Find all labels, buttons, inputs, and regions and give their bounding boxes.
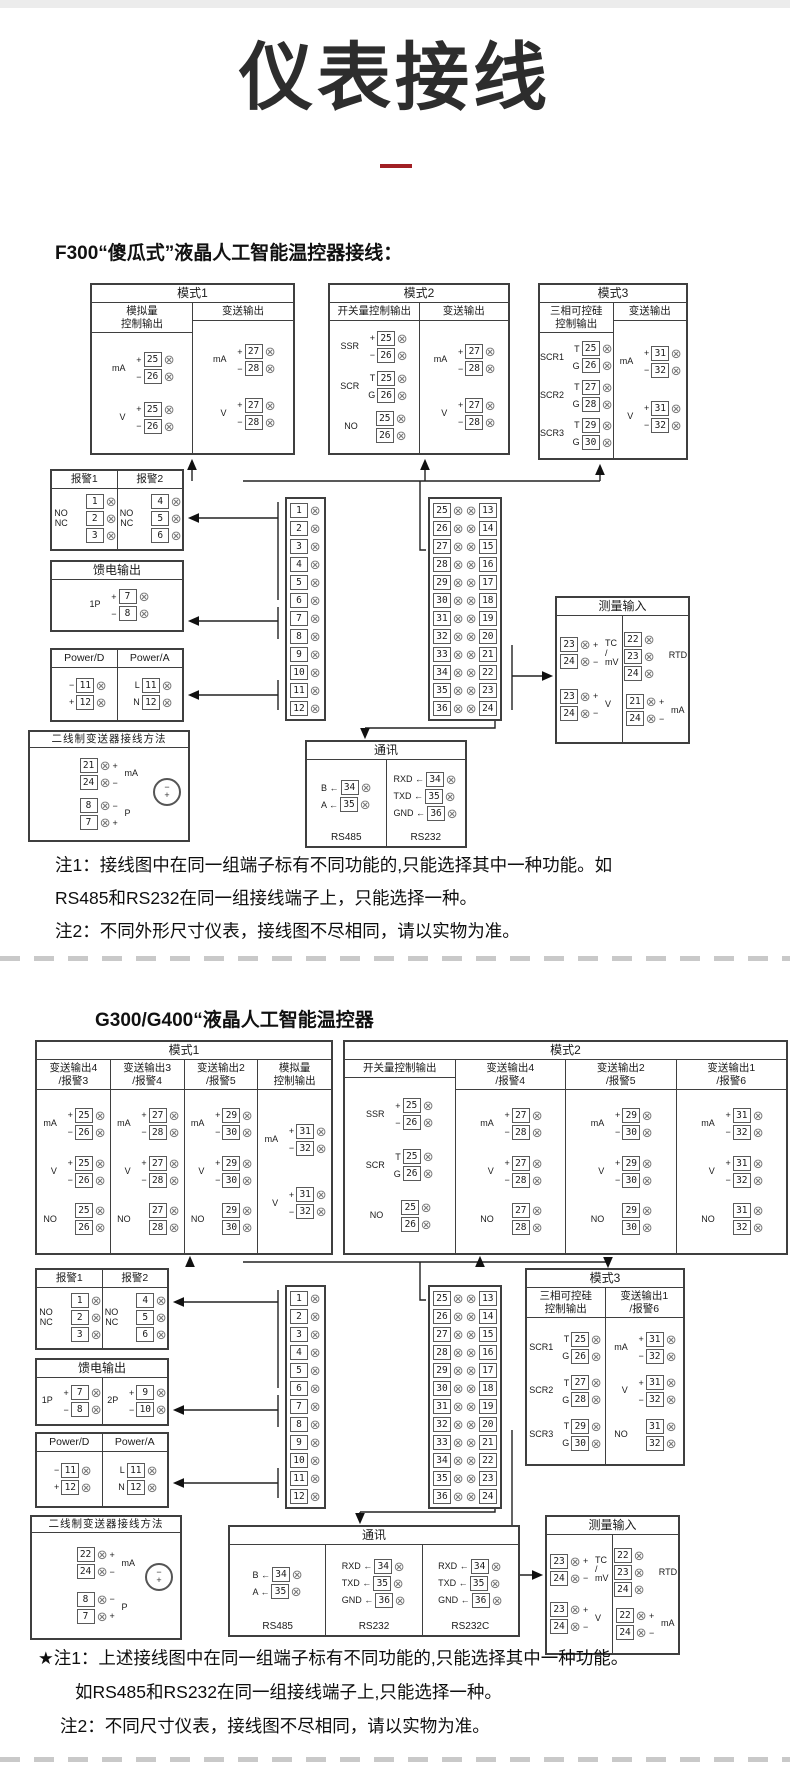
terminal-number: 26 [75,1173,93,1188]
strip-row: 7⊕ [290,1397,321,1415]
group-label: NO [478,1215,494,1224]
group-label: SCR1 [540,353,564,362]
terminal-number: 2 [290,521,308,536]
terminal-number: 12 [61,1480,79,1495]
terminal-number: 11 [76,678,94,693]
terminal: 24⊕− [560,706,602,721]
screw-terminal-icon: ⊕ [639,1219,656,1236]
terminal-mark: − [659,714,668,724]
terminal-number: 9 [290,647,308,662]
terminal-number: 25 [144,402,162,417]
f300-comm-panel: 通讯B ←34⊕A ←35⊕RS485RXD ←34⊕TXD ←35⊕GND ←… [305,740,467,848]
terminal: G26⊕ [567,358,613,373]
screw-terminal-icon: ⊕ [239,1219,256,1236]
group-label: NO NC [37,1308,53,1327]
terminal-group: NO25⊕26⊕ [330,411,419,443]
column-body: −11⊕+12⊕ [52,668,117,720]
terminal-mark: − [281,1143,294,1153]
column-header: 变送输出 [614,303,687,321]
terminal: +29⊕ [607,1156,653,1171]
g300-note-1: ★注1：上述接线图中在同一组端子标有不同功能的,只能选择其中一种功能。 [38,1645,628,1670]
screw-terminal-icon: ⊕ [92,1155,109,1172]
terminal: 28⊕ [497,1220,543,1235]
screw-terminal-icon: ⊕ [166,1219,183,1236]
screw-terminal-icon: ⊕ [97,757,114,774]
panel-column: 23⊕+24⊕−TC / mV23⊕+24⊕−V [547,1535,612,1653]
group-label: mA [478,1119,494,1128]
panel-columns: 模拟量 控制输出mA+25⊕−26⊕V+25⊕−26⊕变送输出mA+27⊕−28… [92,303,293,453]
terminal-number: 32 [646,1392,664,1407]
terminal: +27⊕ [497,1156,543,1171]
terminal-mark: L [112,1465,125,1475]
screw-terminal-icon: ⊕ [750,1124,767,1141]
terminal-number: 29 [622,1156,640,1171]
terminal: 26⊕ [60,1220,106,1235]
terminal-mark: − [134,1175,147,1185]
terminal-mark: + [583,1605,592,1615]
terminal-list: +31⊕−32⊕ [631,1375,677,1407]
terminal: +25⊕ [129,352,175,367]
g300-twowire-panel: 二线制变送器接线方法22⊕+24⊕−mA8⊕−7⊕+P−+ [30,1515,182,1640]
group-label: V [595,1614,609,1623]
screw-terminal-icon: ⊕ [420,1097,437,1114]
terminal: 27⊕ [134,1203,180,1218]
terminal-list: 27⊕28⊕ [497,1203,543,1235]
screw-terminal-icon: ⊕ [394,347,411,364]
terminal: 24⊕− [550,1571,592,1586]
terminal-list: +9⊕−10⊕ [121,1385,167,1417]
screw-terminal-icon: ⊕ [313,1140,330,1157]
terminal-number: 12 [76,695,94,710]
column-body: mA+29⊕−30⊕V+29⊕−30⊕NO29⊕30⊕ [185,1090,258,1253]
screw-terminal-icon: ⊕ [166,1172,183,1189]
terminal-number: 2 [86,511,104,526]
terminal: 21⊕+ [626,694,668,709]
screw-terminal-icon: ⊕ [639,1172,656,1189]
terminal: N12⊕ [127,695,173,710]
group-label: mA [671,706,685,715]
terminal: +27⊕ [497,1108,543,1123]
terminal-number: 33 [433,647,451,662]
screw-terminal-icon: ⊕ [463,1380,480,1397]
screw-terminal-icon: ⊕ [166,1124,183,1141]
screw-terminal-icon: ⊕ [262,397,279,414]
terminal-number: 8 [77,1592,95,1607]
terminal-number: 24 [560,706,578,721]
terminal-list: +27⊕−28⊕ [497,1108,543,1140]
terminal-list: −11⊕+12⊕ [61,678,107,710]
screw-terminal-icon: ⊕ [159,694,176,711]
terminal-mark: + [649,1611,658,1621]
screw-terminal-icon: ⊕ [153,1326,170,1343]
g300-strip-right: 25⊕⊕1326⊕⊕1427⊕⊕1528⊕⊕1629⊕⊕1730⊕⊕1831⊕⊕… [428,1285,502,1509]
terminal-mark: − [362,350,375,360]
terminal-mark: − [134,1127,147,1137]
f300-mode1-panel: 模式1模拟量 控制输出mA+25⊕−26⊕V+25⊕−26⊕变送输出mA+27⊕… [90,283,295,455]
terminal-number: 33 [433,1435,451,1450]
screw-terminal-icon: ⊕ [420,1148,437,1165]
terminal-number: 19 [479,1399,497,1414]
terminal-number: 22 [479,665,497,680]
screw-terminal-icon: ⊕ [307,556,324,573]
group-label: SCR2 [540,391,564,400]
screw-terminal-icon: ⊕ [153,1401,170,1418]
screw-terminal-icon: ⊕ [357,796,374,813]
terminal: B ←34⊕ [321,780,371,795]
terminal: −28⊕ [134,1125,180,1140]
terminal-number: 36 [433,701,451,716]
screw-terminal-icon: ⊕ [394,330,411,347]
terminal: G26⊕ [388,1166,434,1181]
terminal-number: 16 [479,1345,497,1360]
screw-terminal-icon: ⊕ [463,1434,480,1451]
screw-terminal-icon: ⊕ [390,1575,407,1592]
terminal: 24⊕− [550,1619,592,1634]
terminal-mark: + [450,400,463,410]
terminal-list: +27⊕−28⊕ [497,1156,543,1188]
group-label: mA [124,769,138,778]
strip-row: 27⊕⊕15 [433,1325,497,1343]
terminal: 23⊕ [624,649,666,664]
terminal: −28⊕ [497,1125,543,1140]
terminal: 3⊕ [71,528,117,543]
terminal-mark: A ← [252,1587,269,1597]
strip-row: 27⊕⊕15 [433,537,497,555]
terminal: −11⊕ [46,1463,92,1478]
strip-row: 8⊕ [290,627,321,645]
group-label: mA [41,1119,57,1128]
terminal-list: +29⊕−30⊕ [607,1108,653,1140]
terminal-number: 7 [290,611,308,626]
panel-title: 馈电输出 [37,1360,167,1378]
strip-row: 10⊕ [290,663,321,681]
panel-columns: B ←34⊕A ←35⊕RS485RXD ←34⊕TXD ←35⊕GND ←36… [307,760,465,846]
screw-terminal-icon: ⊕ [307,1416,324,1433]
terminal-number: 4 [290,557,308,572]
terminal-number: 27 [433,539,451,554]
terminal: 22⊕ [614,1548,656,1563]
terminal: +25⊕ [60,1156,106,1171]
f300-strip-left: 1⊕2⊕3⊕4⊕5⊕6⊕7⊕8⊕9⊕10⊕11⊕12⊕ [285,497,326,721]
panel-columns: 开关量控制输出SSR+25⊕−26⊕SCRT25⊕G26⊕NO25⊕26⊕变送输… [330,303,508,453]
screw-terminal-icon: ⊕ [166,1155,183,1172]
screw-terminal-icon: ⊕ [97,774,114,791]
terminal-number: 11 [142,678,160,693]
terminal-number: 26 [75,1220,93,1235]
terminal-number: 22 [624,632,642,647]
terminal-mark: − [230,417,243,427]
strip-row: 33⊕⊕21 [433,645,497,663]
group-label: V [41,1167,57,1176]
terminal: L11⊕ [112,1463,158,1478]
screw-terminal-icon: ⊕ [239,1202,256,1219]
terminal-mark: − [450,364,463,374]
group-label: SCR [340,382,359,391]
terminal-mark: + [112,761,121,771]
screw-terminal-icon: ⊕ [633,1624,650,1641]
terminal-list: +27⊕−28⊕ [230,344,276,376]
terminal-number: 26 [403,1166,421,1181]
column-body: mA+25⊕−26⊕V+25⊕−26⊕NO25⊕26⊕ [37,1090,110,1253]
terminal-number: 28 [149,1220,167,1235]
strip-row: 3⊕ [290,537,321,555]
terminal-number: 7 [290,1399,308,1414]
terminal: 24⊕− [560,654,602,669]
screw-terminal-icon: ⊕ [307,646,324,663]
strip-row: 4⊕ [290,1343,321,1361]
terminal-list: RXD ←34⊕TXD ←35⊕GND ←36⊕ [394,772,458,821]
terminal-list: 31⊕32⊕ [718,1203,764,1235]
terminal-group: NO25⊕26⊕ [37,1203,110,1235]
screw-terminal-icon: ⊕ [94,1546,111,1563]
terminal: 6⊕ [121,1327,167,1342]
g300-comm-panel: 通讯B ←34⊕A ←35⊕RS485RXD ←34⊕TXD ←35⊕GND ←… [228,1525,520,1637]
terminal-mark: − [112,778,121,788]
terminal-number: 29 [222,1156,240,1171]
group-label: V [211,409,227,418]
terminal-number: 29 [571,1419,589,1434]
terminal-list: +29⊕−30⊕ [207,1156,253,1188]
panel-column: 开关量控制输出SSR+25⊕−26⊕SCRT25⊕G26⊕NO25⊕26⊕ [345,1060,455,1253]
screw-terminal-icon: ⊕ [463,574,480,591]
screw-terminal-icon: ⊕ [588,1331,605,1348]
screw-terminal-icon: ⊕ [443,771,460,788]
terminal-number: 31 [651,401,669,416]
terminal-mark: + [129,404,142,414]
screw-terminal-icon: ⊕ [288,1583,305,1600]
terminal-group: NO31⊕32⊕ [677,1203,787,1235]
terminal-number: 8 [290,629,308,644]
screw-terminal-icon: ⊕ [92,1172,109,1189]
terminal-number: 27 [149,1156,167,1171]
panel-column: RXD ←34⊕TXD ←35⊕GND ←36⊕RS232C [422,1545,518,1635]
strip-row: 34⊕⊕22 [433,1451,497,1469]
terminal-mark: G [556,1395,569,1405]
terminal-number: 24 [616,1625,634,1640]
terminal-mark: + [497,1158,510,1168]
terminal-list: +25⊕−26⊕ [388,1098,434,1130]
screw-terminal-icon: ⊕ [567,1570,584,1587]
screw-terminal-icon: ⊕ [78,1479,95,1496]
terminal-number: 23 [560,637,578,652]
terminal-group: SCR1T25⊕G26⊕ [540,341,613,373]
terminal-number: 7 [77,1609,95,1624]
terminal: GND ←36⊕ [342,1593,406,1608]
panel-title: 模式2 [345,1042,786,1060]
panel-column: RXD ←34⊕TXD ←35⊕GND ←36⊕RS232 [325,1545,421,1635]
terminal-mark: + [583,1556,592,1566]
terminal-group: 23⊕+24⊕−V [547,1602,612,1634]
screw-terminal-icon: ⊕ [94,1563,111,1580]
terminal-number: 25 [75,1156,93,1171]
terminal-mark: T [556,1378,569,1388]
strip-row: 6⊕ [290,591,321,609]
terminal-number: 7 [119,589,137,604]
terminal-number: 30 [433,593,451,608]
terminal-list: +7⊕−8⊕ [56,1385,102,1417]
transmitter-plus: + [164,792,169,800]
dashed-divider [0,956,790,961]
terminal-number: 10 [136,1402,154,1417]
terminal-mark: + [631,1334,644,1344]
g300-strip-left: 1⊕2⊕3⊕4⊕5⊕6⊕7⊕8⊕9⊕10⊕11⊕12⊕ [285,1285,326,1509]
screw-terminal-icon: ⊕ [239,1124,256,1141]
terminal-mark: − [450,417,463,427]
screw-terminal-icon: ⊕ [663,1391,680,1408]
terminal-list: +27⊕−28⊕ [230,398,276,430]
terminal: −32⊕ [631,1392,677,1407]
terminal-number: 31 [646,1419,664,1434]
terminal-number: 3 [290,539,308,554]
panel-columns: 1P+7⊕−8⊕2P+9⊕−10⊕ [37,1378,167,1424]
screw-terminal-icon: ⊕ [529,1202,546,1219]
screw-terminal-icon: ⊕ [394,387,411,404]
terminal-group: B ←34⊕A ←35⊕ [307,780,386,812]
panel-title: 馈电输出 [52,562,182,580]
terminal: RXD ←34⊕ [438,1559,502,1574]
terminal-number: 25 [144,352,162,367]
terminal-mark: − [46,1465,59,1475]
terminal-number: 25 [376,411,394,426]
terminal-mark: + [281,1126,294,1136]
terminal-mark: − [593,708,602,718]
panel-column: 变送输出mA+27⊕−28⊕V+27⊕−28⊕ [419,303,509,453]
group-label: SCR2 [529,1386,553,1395]
terminal-number: 32 [733,1173,751,1188]
terminal-number: 22 [614,1548,632,1563]
terminal: 7⊕+ [80,815,122,830]
terminal-number: 34 [426,772,444,787]
screw-terminal-icon: ⊕ [307,1380,324,1397]
screw-terminal-icon: ⊕ [313,1123,330,1140]
screw-terminal-icon: ⊕ [643,693,660,710]
terminal-number: 28 [433,557,451,572]
terminal: −10⊕ [121,1402,167,1417]
group-label: V [115,1167,131,1176]
screw-terminal-icon: ⊕ [641,631,658,648]
terminal: 25⊕ [361,411,407,426]
f300-note-1b: RS485和RS232在同一组接线端子上，只能选择一种。 [55,885,477,910]
column-header: 变送输出4 /报警4 [456,1060,566,1090]
terminal-mark: B ← [252,1570,270,1580]
group-label: NO NC [102,1308,118,1327]
terminal-mark: B ← [321,783,339,793]
terminal-mark: G [567,361,580,371]
group-label: SCR [366,1161,385,1170]
screw-terminal-icon: ⊕ [307,700,324,717]
panel-column: 1P+7⊕−8⊕ [52,580,182,630]
terminal: −26⊕ [60,1173,106,1188]
column-header: 模拟量 控制输出 [92,303,192,333]
terminal-mark: G [556,1351,569,1361]
group-label: V [262,1199,278,1208]
screw-terminal-icon: ⊕ [487,1575,504,1592]
terminal: −26⊕ [362,348,408,363]
screw-terminal-icon: ⊕ [641,665,658,682]
screw-terminal-icon: ⊕ [94,1591,111,1608]
column-body: SSR+25⊕−26⊕SCRT25⊕G26⊕NO25⊕26⊕ [345,1078,455,1253]
terminal-list: T25⊕G26⊕ [567,341,613,373]
terminal-list: 1⊕2⊕3⊕ [56,1293,102,1342]
screw-terminal-icon: ⊕ [588,1418,605,1435]
column-body: SSR+25⊕−26⊕SCRT25⊕G26⊕NO25⊕26⊕ [330,321,419,453]
terminal-number: 1 [290,1291,308,1306]
screw-terminal-icon: ⊕ [588,1435,605,1452]
group-label: mA [262,1135,278,1144]
terminal-mark: + [121,1388,134,1398]
terminal: RXD ←34⊕ [394,772,458,787]
screw-terminal-icon: ⊕ [482,343,499,360]
column-header: 变送输出1 /报警6 [606,1288,684,1318]
terminal-list: 22⊕23⊕24⊕ [624,632,666,681]
screw-terminal-icon: ⊕ [307,520,324,537]
panel-columns: Power/D−11⊕+12⊕Power/AL11⊕N12⊕ [37,1434,167,1506]
terminal: −32⊕ [281,1204,327,1219]
group-label: V [478,1167,494,1176]
terminal-list: 25⊕26⊕ [361,411,407,443]
terminal-number: 24 [550,1571,568,1586]
terminal-number: 30 [222,1125,240,1140]
terminal-mark: T [567,344,580,354]
column-footer: RS232C [423,1621,518,1635]
terminal: −26⊕ [129,369,175,384]
screw-terminal-icon: ⊕ [166,1202,183,1219]
terminal-group: 21⊕+24⊕−mA [623,694,688,726]
terminal-number: 34 [272,1567,290,1582]
strip-row: 34⊕⊕22 [433,663,497,681]
terminal-group: −11⊕+12⊕ [37,1463,102,1495]
screw-terminal-icon: ⊕ [633,1607,650,1624]
terminal: TXD ←35⊕ [342,1576,406,1591]
terminal: −30⊕ [607,1125,653,1140]
g300-mode2-panel: 模式2开关量控制输出SSR+25⊕−26⊕SCRT25⊕G26⊕NO25⊕26⊕… [343,1040,788,1255]
terminal-list: +27⊕−28⊕ [450,398,496,430]
terminal-group: mA+31⊕−32⊕ [614,346,687,378]
column-body: mA+27⊕−28⊕V+27⊕−28⊕ [420,321,509,453]
screw-terminal-icon: ⊕ [489,1592,506,1609]
terminal-number: 29 [433,1363,451,1378]
terminal-list: T27⊕G28⊕ [556,1375,602,1407]
panel-title: 模式1 [37,1042,331,1060]
terminal-mark: N [127,697,140,707]
column-body: mA+31⊕−32⊕V+31⊕−32⊕ [258,1090,331,1253]
terminal-list: T25⊕G26⊕ [362,371,408,403]
terminal: RXD ←34⊕ [342,1559,406,1574]
strip-row: 12⊕ [290,1487,321,1505]
terminal-number: 25 [433,1291,451,1306]
terminal-mark: + [104,592,117,602]
terminal-number: 32 [646,1436,664,1451]
terminal-group: SCR2T27⊕G28⊕ [527,1375,605,1407]
terminal-number: 24 [77,1564,95,1579]
screw-terminal-icon: ⊕ [307,664,324,681]
screw-terminal-icon: ⊕ [97,814,114,831]
terminal-list: 22⊕+24⊕− [616,1608,658,1640]
terminal-group: V+27⊕−28⊕ [193,398,293,430]
screw-terminal-icon: ⊕ [307,1452,324,1469]
terminal-number: 36 [472,1593,490,1608]
terminal: 23⊕+ [560,689,602,704]
column-body: NO NC1⊕2⊕3⊕ [37,1288,102,1348]
screw-terminal-icon: ⊕ [307,1488,324,1505]
screw-terminal-icon: ⊕ [92,1219,109,1236]
terminal-number: 23 [614,1565,632,1580]
terminal: +25⊕ [129,402,175,417]
column-body: B ←34⊕A ←35⊕ [230,1545,325,1621]
group-label: mA [588,1119,604,1128]
terminal-group: V+27⊕−28⊕ [111,1156,184,1188]
group-label: SCR3 [529,1430,553,1439]
